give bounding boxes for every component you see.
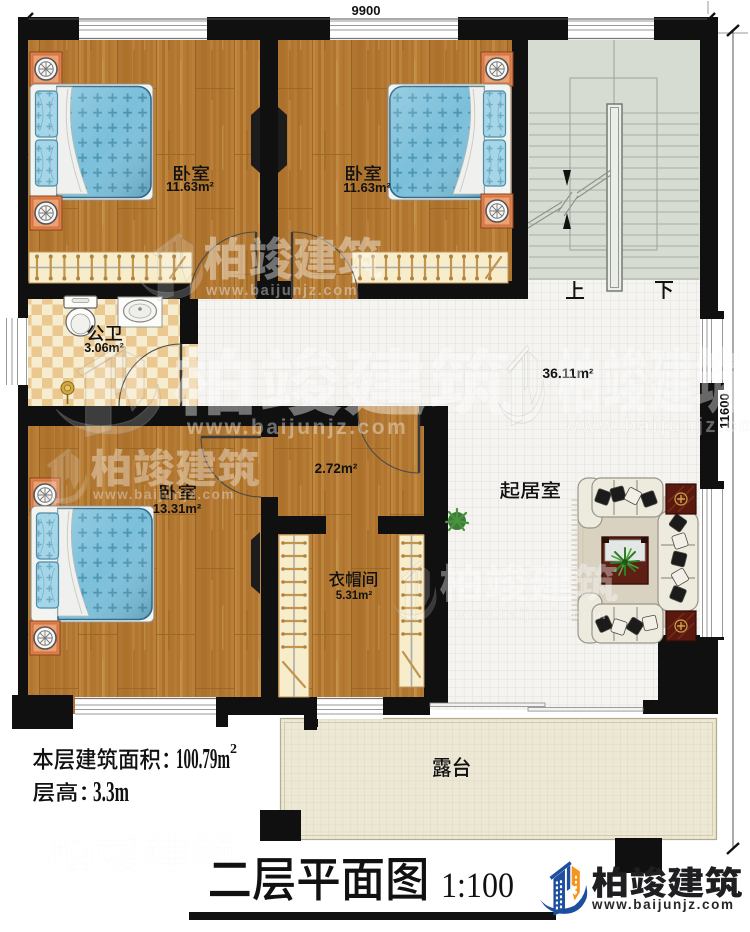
svg-text:www.baijunjz.com: www.baijunjz.com [454, 607, 607, 623]
svg-text:13.31m²: 13.31m² [153, 501, 202, 516]
svg-text:3.3m: 3.3m [93, 777, 129, 808]
svg-text:www.baijunjz.com: www.baijunjz.com [205, 283, 358, 299]
svg-text:11.63m²: 11.63m² [343, 180, 391, 195]
svg-text:2.72m²: 2.72m² [315, 461, 358, 476]
svg-text:1:100: 1:100 [441, 865, 514, 905]
svg-text:5.31m²: 5.31m² [336, 590, 373, 602]
svg-text:9900: 9900 [352, 3, 381, 18]
svg-text:11.63m²: 11.63m² [166, 179, 214, 194]
svg-text:100.79m: 100.79m [176, 744, 230, 775]
svg-text:www.baijunjz.com: www.baijunjz.com [92, 487, 235, 502]
svg-text:2: 2 [230, 742, 237, 757]
svg-text:www.baijunjz.com: www.baijunjz.com [186, 416, 408, 439]
svg-text:www.baijunjz.com: www.baijunjz.com [562, 415, 750, 437]
